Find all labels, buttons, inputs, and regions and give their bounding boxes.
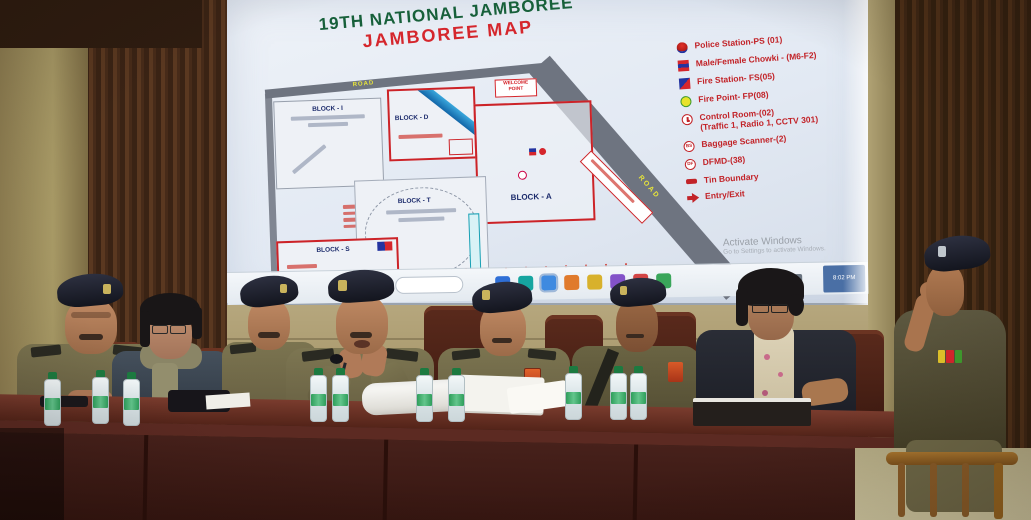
block-d-subtext	[398, 134, 442, 139]
scarf-floral-dot	[764, 354, 770, 360]
welcome-point-box: WELCOME POINT	[495, 78, 538, 97]
activate-windows-watermark: Activate Windows Go to Settings to activ…	[723, 234, 826, 256]
document-stack-dark	[693, 398, 811, 426]
open-mouth	[354, 340, 370, 348]
arm-brassard	[668, 362, 683, 382]
dfmd-icon: DF	[684, 158, 696, 170]
block-i: BLOCK - I	[273, 98, 384, 190]
chair-spindle	[962, 463, 969, 517]
road-top-label: ROAD	[352, 80, 374, 88]
glasses	[771, 304, 788, 313]
beret-badge-icon	[620, 286, 627, 295]
fire-point-icon-map	[518, 171, 527, 180]
left-wall-beam	[0, 0, 202, 48]
mustache	[350, 332, 372, 338]
hair-side	[140, 311, 150, 347]
police-station-icon	[676, 42, 688, 54]
water-bottle	[310, 368, 327, 422]
water-bottle	[92, 370, 109, 424]
block-i-slanted-text	[292, 144, 327, 174]
block-a: BLOCK - A	[473, 100, 595, 224]
corner-shadow	[0, 428, 64, 520]
mustache	[258, 332, 280, 338]
beret	[471, 279, 534, 315]
water-bottle	[44, 372, 61, 426]
hair-side	[736, 288, 748, 326]
block-a-label: BLOCK - A	[511, 192, 552, 202]
brow-shadow	[71, 312, 111, 318]
water-bottle	[565, 366, 582, 420]
block-s-label: BLOCK - S	[316, 246, 349, 254]
block-i-subtext	[308, 122, 348, 127]
block-i-subtext	[291, 114, 365, 121]
fire-station-icon	[679, 78, 691, 90]
hair-bun	[788, 294, 804, 316]
block-d-sub-block	[449, 138, 474, 155]
block-d: BLOCK - D	[387, 86, 477, 161]
beret-badge-icon	[482, 290, 490, 300]
beret	[922, 232, 992, 274]
face	[926, 264, 964, 316]
chair-spindle	[994, 463, 1003, 519]
chair-spindle	[930, 463, 937, 517]
road-diagonal-label: ROAD	[637, 174, 661, 200]
conference-room-photo: 19TH NATIONAL JAMBOREE JAMBOREE MAP ROAD…	[0, 0, 1031, 520]
beret-badge-icon	[938, 246, 946, 257]
mustache	[492, 338, 512, 343]
microphone-icon	[330, 354, 343, 364]
scarf-floral-dot	[762, 390, 768, 396]
water-bottle	[610, 366, 627, 420]
block-t-teal-bar	[468, 213, 481, 275]
block-d-label: BLOCK - D	[395, 114, 429, 122]
mustache	[626, 334, 644, 338]
male-female-chowki-icon	[678, 60, 690, 72]
beret	[609, 276, 667, 309]
medal-ribbon-icon	[938, 350, 962, 363]
entry-exit-arrow-icon	[687, 193, 699, 205]
block-s-flag-icon	[377, 241, 392, 251]
hair-side	[192, 307, 202, 339]
glasses	[752, 304, 769, 313]
glasses	[152, 325, 168, 334]
glasses	[170, 325, 186, 334]
fire-point-icon	[680, 96, 692, 108]
water-bottle	[123, 372, 140, 426]
water-bottle	[332, 368, 349, 422]
baggage-scanner-icon: BS	[683, 140, 695, 152]
tin-boundary-icon	[686, 178, 697, 184]
block-t-label: BLOCK - T	[398, 197, 431, 205]
trousers	[906, 440, 1002, 512]
beret-badge-icon	[338, 280, 347, 291]
block-i-label: BLOCK - I	[274, 104, 380, 115]
male-female-chowki-icon	[529, 148, 536, 155]
police-point-icon	[539, 148, 546, 155]
screen-glare	[843, 0, 868, 305]
slide-title: 19TH NATIONAL JAMBOREE JAMBOREE MAP	[281, 0, 613, 59]
scarf-floral-dot	[778, 372, 783, 377]
beret-badge-icon	[103, 284, 111, 294]
water-bottle	[630, 366, 647, 420]
water-bottle	[448, 368, 465, 422]
water-bottle	[416, 368, 433, 422]
projection-screen: 19TH NATIONAL JAMBOREE JAMBOREE MAP ROAD…	[227, 0, 868, 305]
mustache	[79, 334, 103, 340]
chair-spindle	[898, 463, 905, 517]
control-room-icon	[681, 114, 693, 126]
